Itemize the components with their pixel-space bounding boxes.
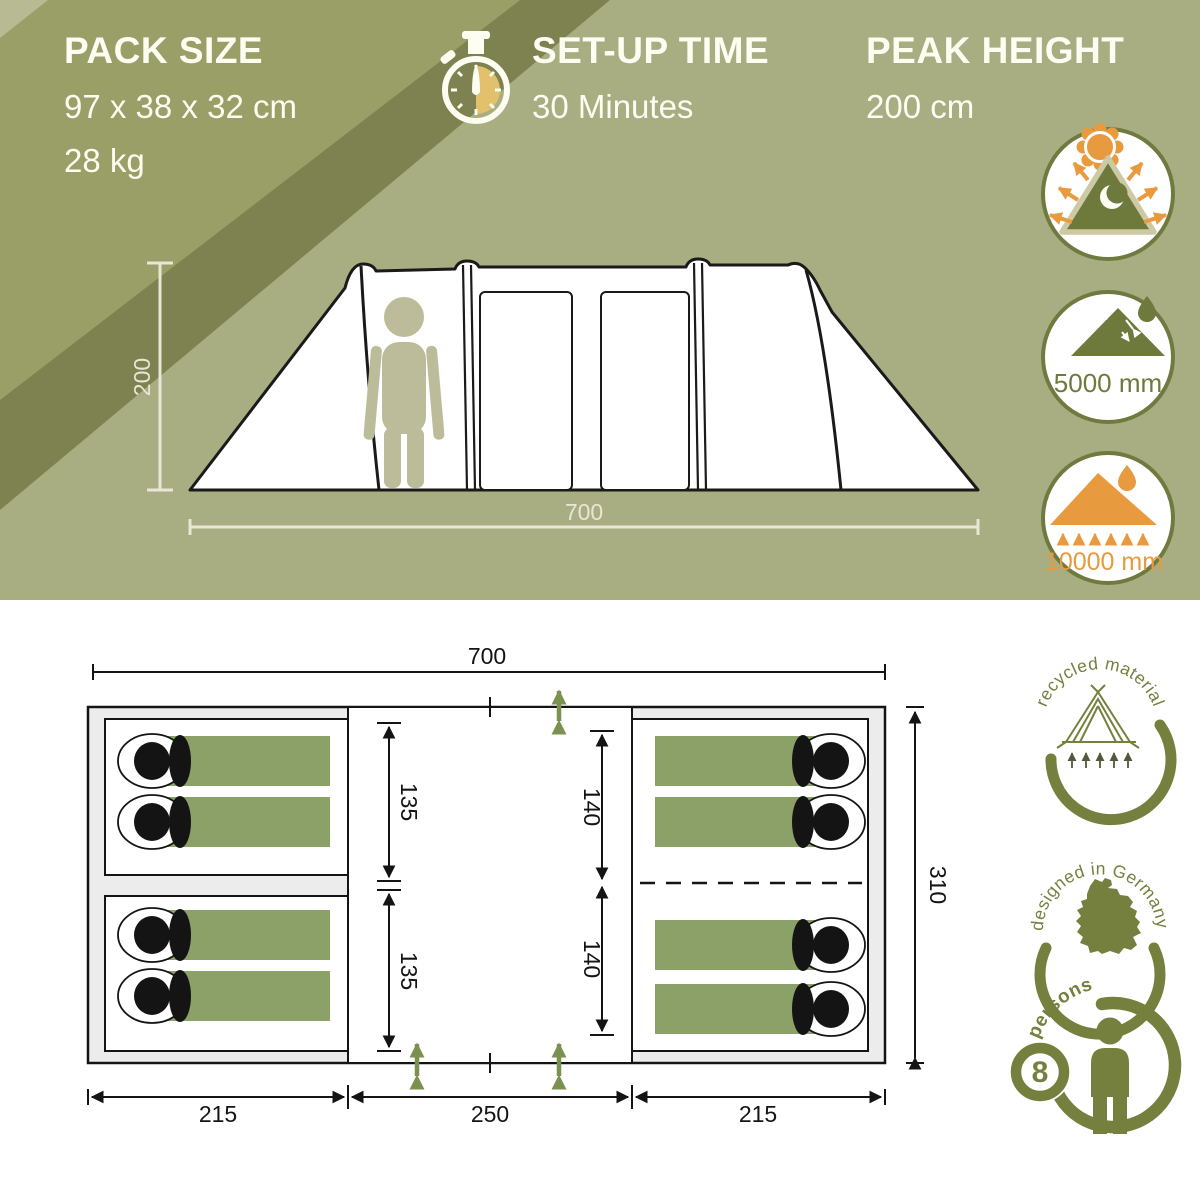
dim-total-depth: [906, 707, 924, 1063]
dim-right-width-label: 215: [739, 1101, 777, 1127]
uv-protection-badge: [1043, 124, 1173, 260]
stopwatch-icon: [439, 31, 507, 121]
sun-icon: [1077, 124, 1124, 171]
dim-left-depth-top-label: 135: [396, 783, 422, 821]
dim-total-depth-label: 310: [925, 866, 951, 904]
recycled-material-badge: recycled material: [1031, 653, 1171, 819]
recycled-stake-arrows: [1072, 753, 1128, 768]
dim-total-width-label: 700: [468, 643, 506, 669]
flysheet-water-column-badge: 5000 mm: [1043, 292, 1173, 422]
side-view-height-label: 200: [129, 358, 155, 396]
dim-left-width-label: 215: [199, 1101, 237, 1127]
recycled-badge-arc: [1051, 725, 1171, 820]
top-section: PACK SIZE 97 x 38 x 32 cm 28 kg SET-UP T…: [0, 0, 1200, 600]
tent-door-right: [601, 292, 689, 490]
dim-right-depth-bottom-label: 140: [579, 940, 605, 978]
germany-map-icon: [1076, 878, 1141, 954]
recycled-tent-icon: [1057, 685, 1139, 748]
groundsheet-water-column-badge: 10000 mm: [1043, 453, 1173, 583]
persons-count: 8: [1032, 1056, 1049, 1089]
tent-door-left: [480, 292, 572, 490]
dim-center-width-label: 250: [471, 1101, 509, 1127]
side-view-width-label: 700: [565, 499, 603, 525]
flysheet-rating-label: 5000 mm: [1054, 368, 1162, 398]
dim-left-depth-bottom-label: 135: [396, 952, 422, 990]
floor-plan-section: 700 310 135 135 140: [0, 600, 1200, 1200]
floor-plan-diagram: 700 310 135 135 140: [0, 600, 1200, 1200]
living-area: [348, 707, 632, 1063]
tent-side-view-diagram: 200 700: [0, 0, 1200, 600]
groundsheet-rating-label: 10000 mm: [1045, 548, 1163, 576]
tent-outline: [190, 259, 978, 490]
dim-right-depth-top-label: 140: [579, 788, 605, 826]
